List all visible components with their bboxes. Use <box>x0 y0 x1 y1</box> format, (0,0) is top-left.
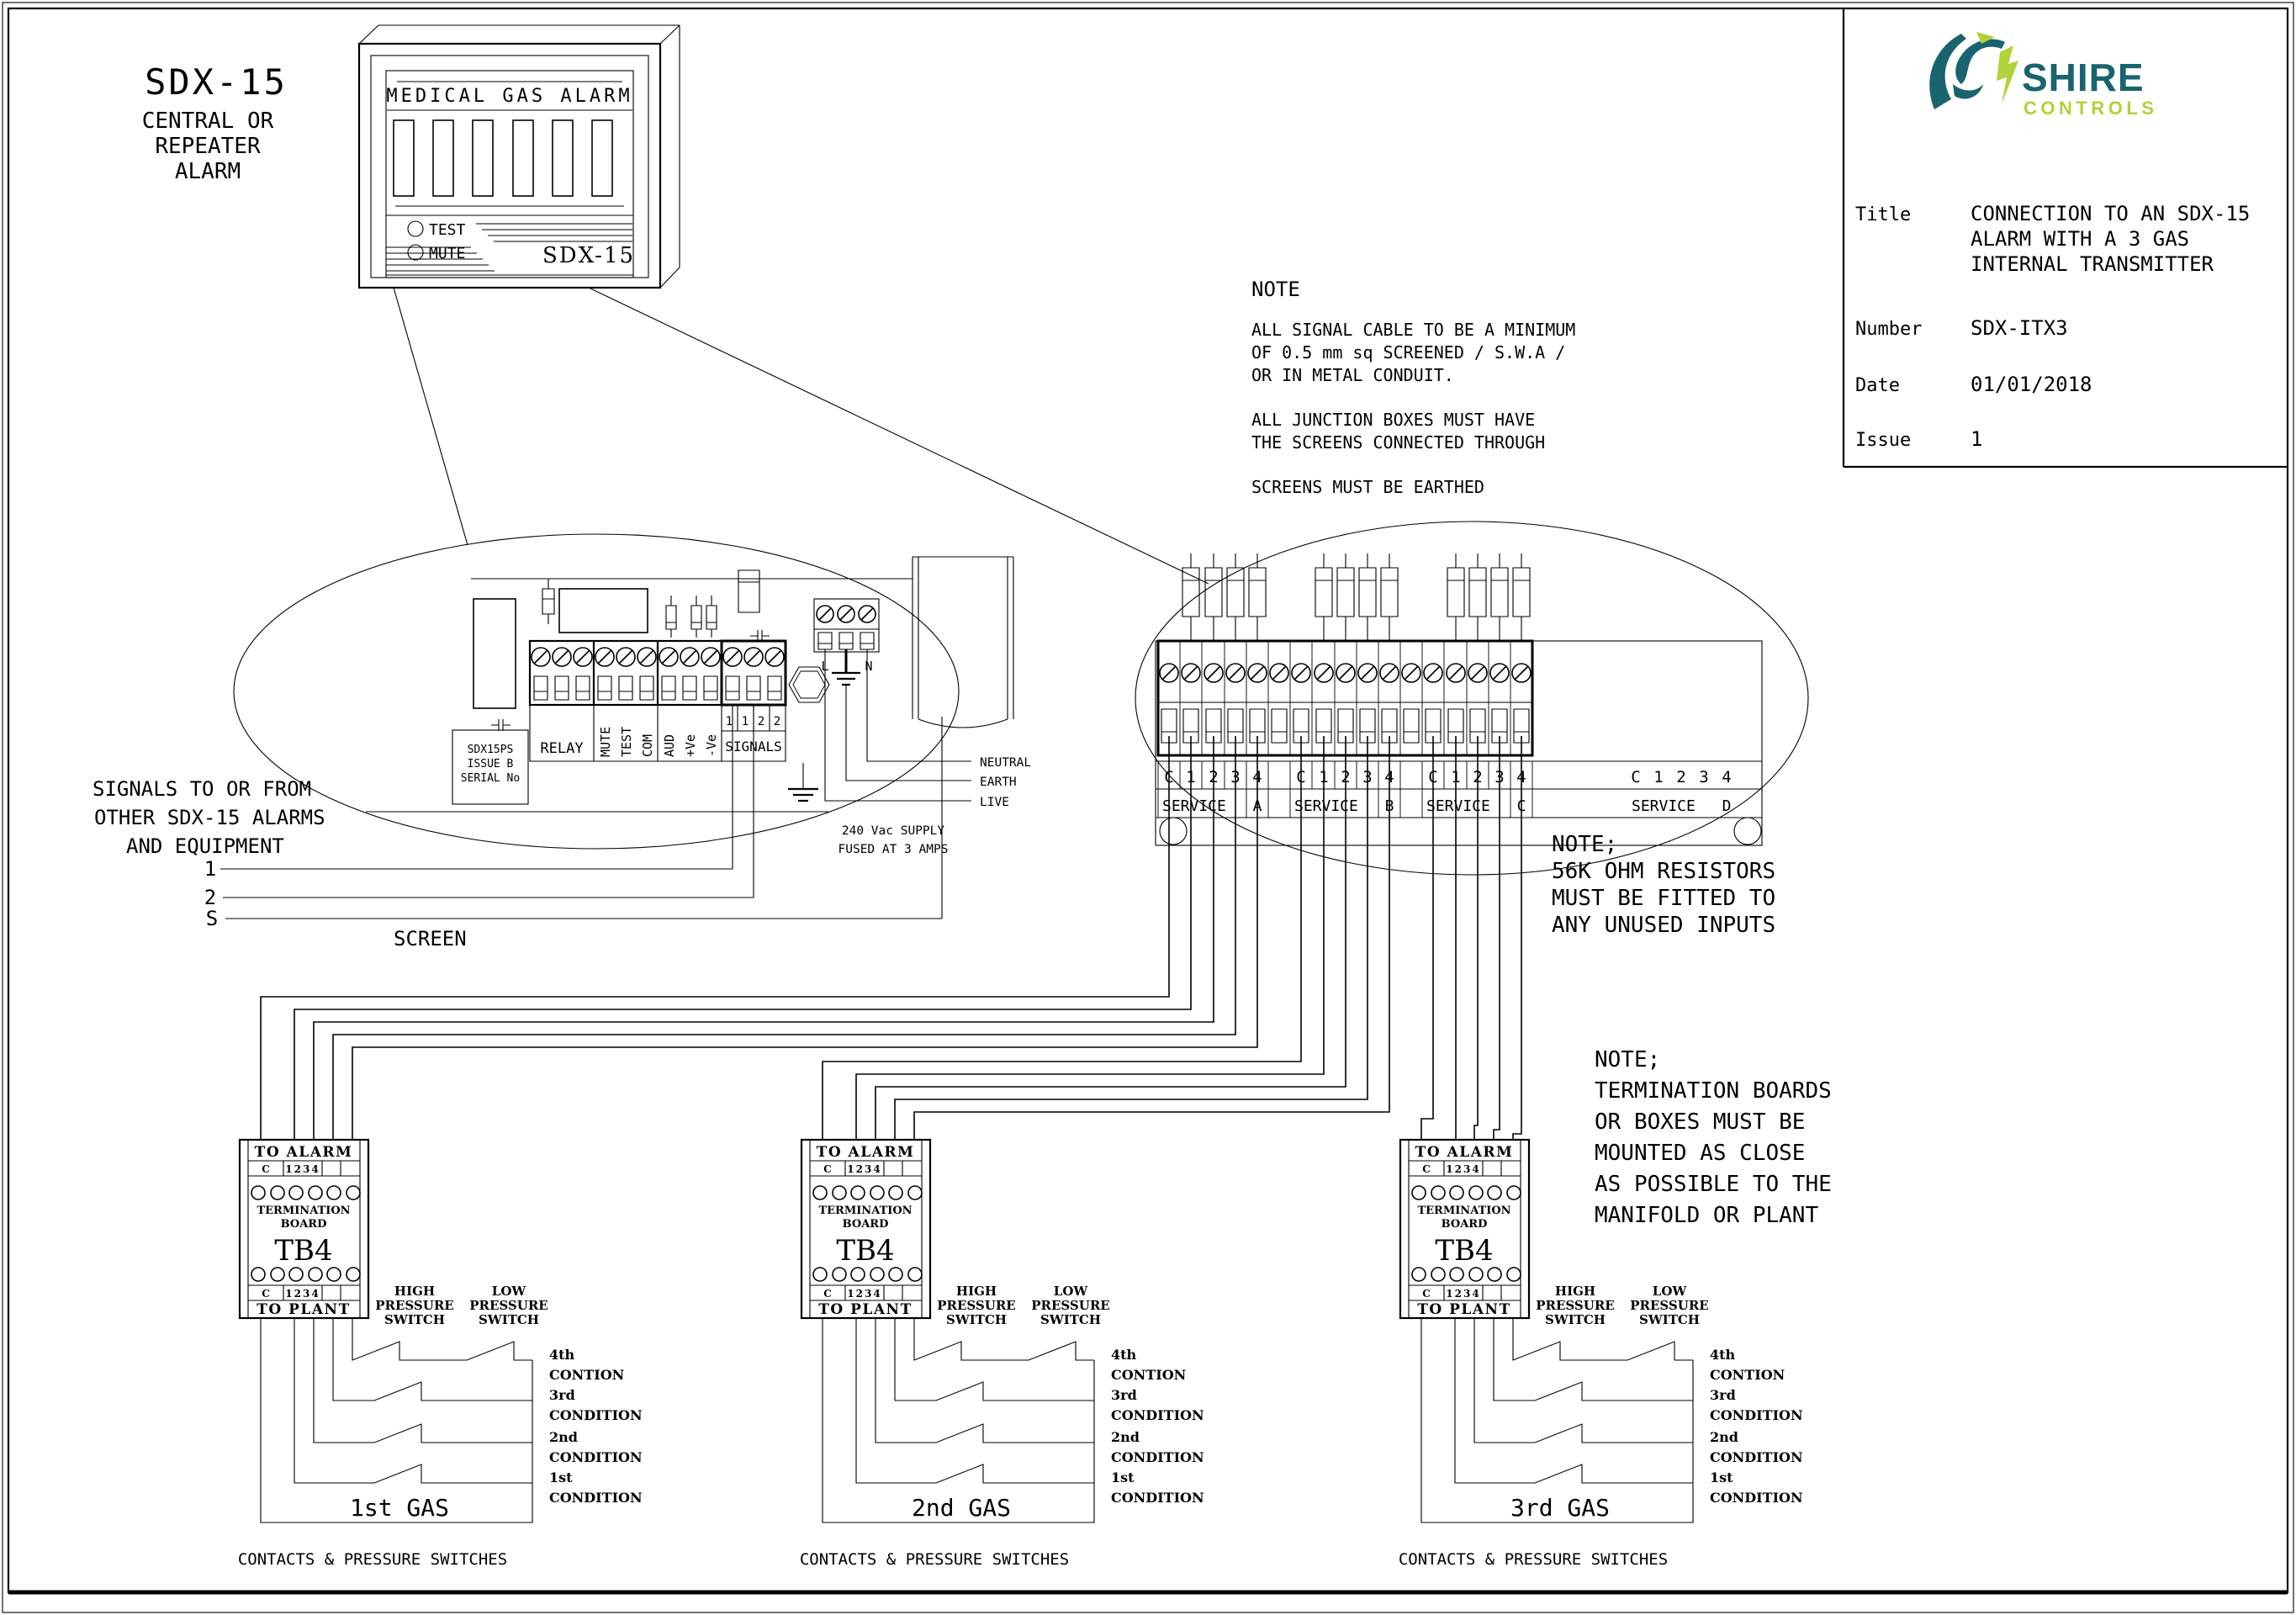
psu-id-line: SDX15PS <box>468 744 514 756</box>
panel-mid-rules <box>386 206 633 215</box>
inner-border <box>8 8 2288 1592</box>
board-type-line: TERMINATION <box>257 1205 350 1217</box>
com-terminal-label: COM <box>640 734 655 757</box>
capacitor-symbol <box>491 719 511 731</box>
display-slot <box>433 120 453 196</box>
terminal-c-label: C <box>1422 1288 1431 1300</box>
note-line: NOTE; <box>1552 832 1617 857</box>
pos-terminal-label: +Ve <box>683 734 698 757</box>
mains-compartment <box>913 557 1013 728</box>
mounting-note: NOTE; TERMINATION BOARDS OR BOXES MUST B… <box>1595 1047 1832 1228</box>
low-switch-line: LOW <box>1653 1284 1688 1299</box>
psu-id-line: SERIAL No <box>461 772 520 785</box>
screen-earth-symbol <box>788 789 818 801</box>
gas-label: 2nd GAS <box>912 1494 1011 1522</box>
low-switch-line: SWITCH <box>1040 1312 1101 1327</box>
note-line: ALL SIGNAL CABLE TO BE A MINIMUM <box>1251 320 1575 340</box>
condition-word: CONDITION <box>1111 1449 1204 1465</box>
condition-word: CONDITION <box>1111 1490 1204 1506</box>
condition-num: 2nd <box>1710 1429 1738 1445</box>
board-type-line: TERMINATION <box>818 1205 912 1217</box>
signal-cell-label: 1 <box>742 715 749 728</box>
condition-word: CONDITION <box>1111 1407 1204 1423</box>
note-line: ALL JUNCTION BOXES MUST HAVE <box>1251 410 1535 430</box>
signal-cell-label: 1 <box>726 715 733 728</box>
note-line: OR IN METAL CONDUIT. <box>1251 365 1454 385</box>
callout-lines <box>394 288 1209 584</box>
low-switch-line: SWITCH <box>479 1312 539 1327</box>
note-line: THE SCREENS CONNECTED THROUGH <box>1251 432 1545 453</box>
display-slot <box>394 120 414 196</box>
condition-word: CONDITION <box>1710 1449 1803 1465</box>
service-c-name: SERVICE <box>1426 797 1490 815</box>
drawing-sheet: SHIRE CONTROLS Title CONNECTION TO AN SD… <box>0 0 2296 1615</box>
diagram-heading: SDX-15 CENTRAL OR REPEATER ALARM <box>142 61 288 184</box>
earth-wire-label: EARTH <box>980 776 1017 789</box>
panel-model-label: SDX-15 <box>542 243 635 268</box>
contacts-footer: CONTACTS & PRESSURE SWITCHES <box>800 1550 1069 1569</box>
brand-word-primary: SHIRE <box>2022 56 2145 99</box>
board-type-line: BOARD <box>843 1218 889 1231</box>
screen-label: SCREEN <box>394 927 467 950</box>
low-switch-line: SWITCH <box>1639 1312 1700 1327</box>
high-switch-line: PRESSURE <box>1536 1298 1615 1313</box>
note-line: NOTE; <box>1595 1047 1660 1072</box>
heading-line: ALARM <box>175 159 241 184</box>
to-alarm-label: TO ALARM <box>1415 1144 1514 1161</box>
neutral-terminal-label: N <box>865 659 872 674</box>
drawing-title-line: CONNECTION TO AN SDX-15 <box>1971 202 2250 225</box>
low-switch-line: PRESSURE <box>1630 1298 1709 1313</box>
supply-fuse-line: FUSED AT 3 AMPS <box>839 843 949 856</box>
signal-wire-number: S <box>206 907 218 930</box>
condition-num: 2nd <box>549 1429 578 1445</box>
low-switch-line: LOW <box>1054 1284 1089 1299</box>
test-button <box>408 221 423 236</box>
alarm-pcb-detail: RELAY MUTE TEST COM AUD +Ve -Ve 1 1 2 2 … <box>234 534 1031 856</box>
service-b-bus <box>823 736 1389 1140</box>
gas-display-slots <box>394 120 612 196</box>
high-switch-line: SWITCH <box>946 1312 1007 1327</box>
title-block: SHIRE CONTROLS Title CONNECTION TO AN SD… <box>1844 8 2288 467</box>
panel-hatch-right <box>476 224 632 241</box>
mains-terminal-screws <box>817 606 876 622</box>
signals-note-line: AND EQUIPMENT <box>126 834 284 858</box>
high-switch-line: PRESSURE <box>375 1298 454 1313</box>
resistor-note: NOTE; 56K OHM RESISTORS MUST BE FITTED T… <box>1552 832 1775 938</box>
condition-num: 1st <box>549 1469 573 1485</box>
gas-label: 3rd GAS <box>1510 1494 1610 1522</box>
company-logo: SHIRE CONTROLS <box>1929 32 2157 119</box>
high-switch-line: HIGH <box>394 1284 435 1299</box>
terminal-num-labels: 1234 <box>1446 1288 1480 1300</box>
neutral-wire-label: NEUTRAL <box>980 756 1031 770</box>
issue-label: Issue <box>1855 430 1911 451</box>
gas-block-2: TO ALARM C 1234 TERMINATION BOARD TB4 C … <box>800 1140 1204 1569</box>
transformer <box>473 599 516 708</box>
condition-word: CONDITION <box>549 1449 643 1465</box>
display-slot <box>592 120 612 196</box>
service-d-cell: 4 <box>1722 768 1731 786</box>
display-slot <box>513 120 533 196</box>
terminal-num-labels: 1234 <box>1446 1163 1480 1175</box>
terminal-num-labels: 1234 <box>847 1288 881 1300</box>
condition-word: CONTION <box>1710 1367 1785 1383</box>
termination-board-linework <box>801 1140 1094 1522</box>
drawing-number: SDX-ITX3 <box>1971 316 2068 340</box>
to-plant-label: TO PLANT <box>1417 1301 1511 1318</box>
condition-num: 4th <box>1710 1347 1736 1363</box>
cable-gland-inner <box>793 671 825 698</box>
psu-id-line: ISSUE B <box>468 758 514 770</box>
logo-bolt-shape <box>1997 45 2018 104</box>
mute-terminal-label: MUTE <box>598 727 613 757</box>
contacts-footer: CONTACTS & PRESSURE SWITCHES <box>1399 1550 1668 1569</box>
note-line: OR BOXES MUST BE <box>1595 1109 1805 1135</box>
heading-line: REPEATER <box>155 134 261 159</box>
number-label: Number <box>1855 319 1922 340</box>
signals-note-line: OTHER SDX-15 ALARMS <box>94 806 325 829</box>
note-line: MOUNTED AS CLOSE <box>1595 1141 1805 1166</box>
date-label: Date <box>1855 375 1900 396</box>
terminal-c-label: C <box>823 1288 832 1300</box>
board-name: TB4 <box>274 1234 332 1268</box>
service-c-bus <box>1421 736 1521 1140</box>
high-switch-line: PRESSURE <box>937 1298 1016 1313</box>
signals-note-line: SIGNALS TO OR FROM <box>93 777 311 801</box>
termination-board-linework <box>240 1140 532 1522</box>
pcb-resistors <box>666 596 717 638</box>
service-b-name: SERVICE <box>1294 797 1358 815</box>
note-line: OF 0.5 mm sq SCREENED / S.W.A / <box>1251 342 1565 363</box>
note-heading: NOTE <box>1251 278 1300 301</box>
gas-label: 1st GAS <box>350 1494 449 1522</box>
supply-rating-line: 240 Vac SUPPLY <box>842 824 944 838</box>
relay-label: RELAY <box>540 740 583 757</box>
high-switch-line: SWITCH <box>1545 1312 1606 1327</box>
board-name: TB4 <box>836 1234 894 1268</box>
condition-word: CONTION <box>549 1367 624 1383</box>
condition-num: 1st <box>1111 1469 1135 1485</box>
service-d-letter: D <box>1722 797 1732 815</box>
terminal-c-label: C <box>823 1163 832 1175</box>
service-board-detail: C 1 2 3 4 SERVICE A C 1 2 3 4 SERVICE B … <box>1135 522 1808 875</box>
terminal-c-label: C <box>1422 1163 1431 1175</box>
note-line: ANY UNUSED INPUTS <box>1552 913 1775 938</box>
pcb-outline <box>366 579 913 812</box>
input-resistors <box>1182 553 1530 641</box>
to-plant-label: TO PLANT <box>257 1301 351 1318</box>
condition-num: 3rd <box>549 1387 575 1403</box>
gas-block-1: TO ALARM C 1234 TERMINATION BOARD TB4 C … <box>238 1140 643 1569</box>
terminal-num-labels: 1234 <box>285 1163 320 1175</box>
termination-board-linework <box>1400 1140 1693 1522</box>
relay-component <box>559 589 648 633</box>
condition-word: CONDITION <box>1710 1407 1803 1423</box>
display-slot <box>473 120 493 196</box>
service-a-name: SERVICE <box>1162 797 1226 815</box>
note-line: AS POSSIBLE TO THE <box>1595 1172 1832 1197</box>
capacitor <box>738 570 759 612</box>
earth-symbol <box>832 673 860 685</box>
mounting-hole <box>1160 818 1187 845</box>
test-button-label: TEST <box>429 221 466 239</box>
service-d-cell: C <box>1631 768 1640 786</box>
terminal-c-label: C <box>262 1288 270 1300</box>
contacts-footer: CONTACTS & PRESSURE SWITCHES <box>238 1550 507 1569</box>
drawing-title-line: ALARM WITH A 3 GAS <box>1971 227 2189 251</box>
condition-word: CONDITION <box>549 1407 643 1423</box>
board-type-line: BOARD <box>281 1218 327 1231</box>
condition-num: 4th <box>1111 1347 1137 1363</box>
panel-title: MEDICAL GAS ALARM <box>386 86 632 107</box>
drawing-title-line: INTERNAL TRANSMITTER <box>1971 252 2214 276</box>
low-switch-line: LOW <box>492 1284 527 1299</box>
board-type-line: BOARD <box>1442 1218 1488 1231</box>
condition-num: 1st <box>1710 1469 1733 1485</box>
mounting-hole <box>1734 818 1761 845</box>
note-line: TERMINATION BOARDS <box>1595 1078 1832 1104</box>
note-line: MUST BE FITTED TO <box>1552 886 1775 911</box>
note-line: MANIFOLD OR PLANT <box>1595 1203 1818 1228</box>
wiring-diagram: SHIRE CONTROLS Title CONNECTION TO AN SD… <box>0 0 2296 1615</box>
board-name: TB4 <box>1435 1234 1493 1268</box>
service-d-cell: 2 <box>1676 768 1685 786</box>
mains-terminal-clamps <box>818 633 874 649</box>
to-alarm-label: TO ALARM <box>255 1144 353 1161</box>
low-switch-line: PRESSURE <box>1031 1298 1110 1313</box>
high-switch-line: SWITCH <box>384 1312 445 1327</box>
drawing-date: 01/01/2018 <box>1971 373 2092 396</box>
service-d-name: SERVICE <box>1632 797 1696 815</box>
title-label: Title <box>1855 204 1911 225</box>
detail-ellipse-right <box>1135 522 1808 875</box>
service-terminal-screws <box>1160 664 1531 682</box>
condition-num: 3rd <box>1111 1387 1137 1403</box>
high-switch-line: HIGH <box>1555 1284 1595 1299</box>
aud-terminal-label: AUD <box>662 734 677 757</box>
board-type-line: TERMINATION <box>1417 1205 1510 1217</box>
condition-num: 3rd <box>1710 1387 1736 1403</box>
condition-num: 4th <box>549 1347 575 1363</box>
cable-note: NOTE ALL SIGNAL CABLE TO BE A MINIMUM OF… <box>1251 278 1575 497</box>
terminal-group-dividers <box>594 641 658 705</box>
high-switch-line: HIGH <box>956 1284 997 1299</box>
note-line: SCREENS MUST BE EARTHED <box>1251 477 1484 497</box>
neg-terminal-label: -Ve <box>704 734 719 757</box>
signal-cell-label: 2 <box>774 715 780 728</box>
brand-word-secondary: CONTROLS <box>2024 98 2157 119</box>
to-alarm-label: TO ALARM <box>817 1144 915 1161</box>
heading-model: SDX-15 <box>145 61 288 103</box>
terminal-c-label: C <box>262 1163 270 1175</box>
alarm-panel: MEDICAL GAS ALARM TEST MUTE SDX-15 <box>359 25 1209 584</box>
drawing-issue: 1 <box>1971 427 1982 451</box>
to-plant-label: TO PLANT <box>818 1301 913 1318</box>
terminal-num-labels: 1234 <box>847 1163 881 1175</box>
condition-word: CONDITION <box>1710 1490 1803 1506</box>
signal-wire-number: 2 <box>204 886 216 909</box>
signals-terminal-group <box>722 641 786 705</box>
signal-cell-label: 2 <box>758 715 764 728</box>
condition-num: 2nd <box>1111 1429 1140 1445</box>
condition-word: CONDITION <box>549 1490 643 1506</box>
service-d-cell: 1 <box>1653 768 1663 786</box>
heading-line: CENTRAL OR <box>142 109 274 134</box>
detail-ellipse-left <box>234 534 959 849</box>
condition-word: CONTION <box>1111 1367 1186 1383</box>
test-terminal-label: TEST <box>619 727 634 757</box>
terminal-num-labels: 1234 <box>285 1288 320 1300</box>
signal-wire-number: 1 <box>204 857 216 881</box>
external-signals: SIGNALS TO OR FROM OTHER SDX-15 ALARMS A… <box>93 705 942 950</box>
low-switch-line: PRESSURE <box>469 1298 548 1313</box>
note-line: 56K OHM RESISTORS <box>1552 859 1775 884</box>
service-d-cell: 3 <box>1699 768 1708 786</box>
live-wire-label: LIVE <box>980 796 1009 809</box>
logo-muzzle-shape <box>1953 84 1983 99</box>
display-slot <box>553 120 573 196</box>
fuse <box>542 579 554 624</box>
